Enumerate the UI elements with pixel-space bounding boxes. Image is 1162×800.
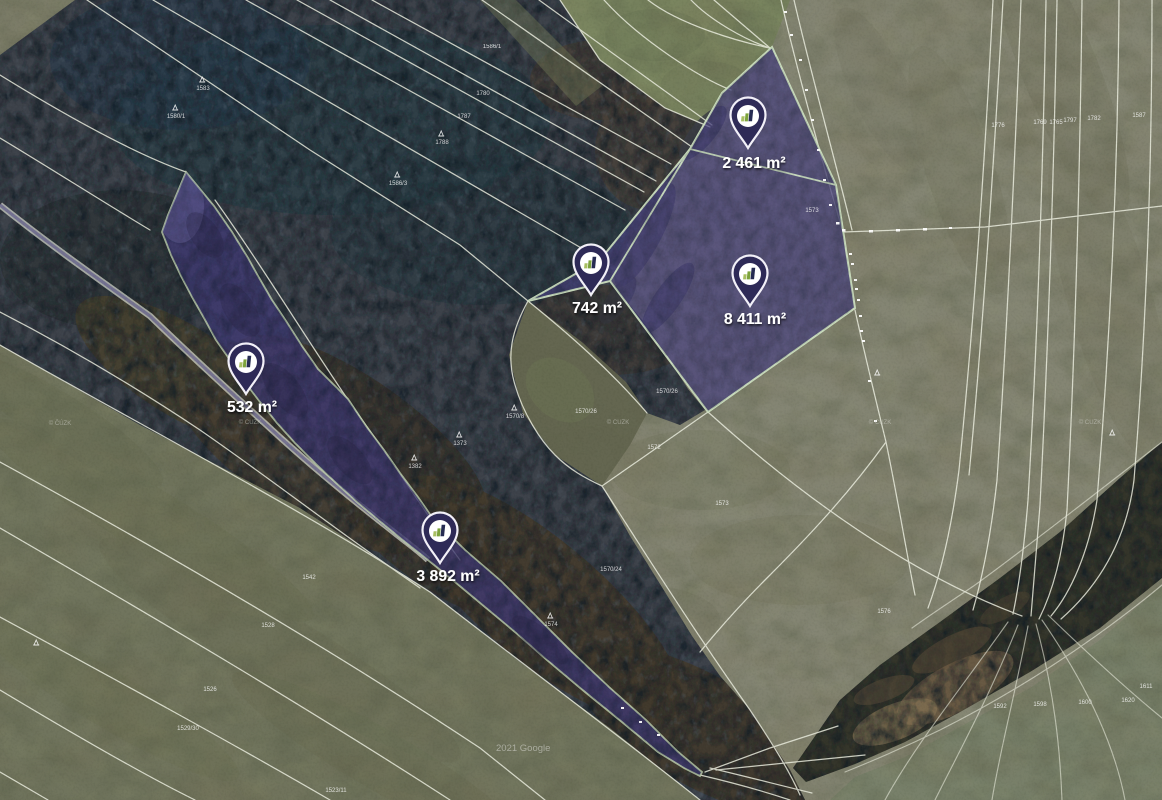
- svg-text:3 892 m²: 3 892 m²: [416, 568, 479, 585]
- svg-text:742 m²: 742 m²: [572, 300, 622, 317]
- svg-text:8 411 m²: 8 411 m²: [724, 311, 786, 328]
- svg-text:532 m²: 532 m²: [227, 399, 277, 416]
- svg-text:2 461 m²: 2 461 m²: [722, 155, 785, 172]
